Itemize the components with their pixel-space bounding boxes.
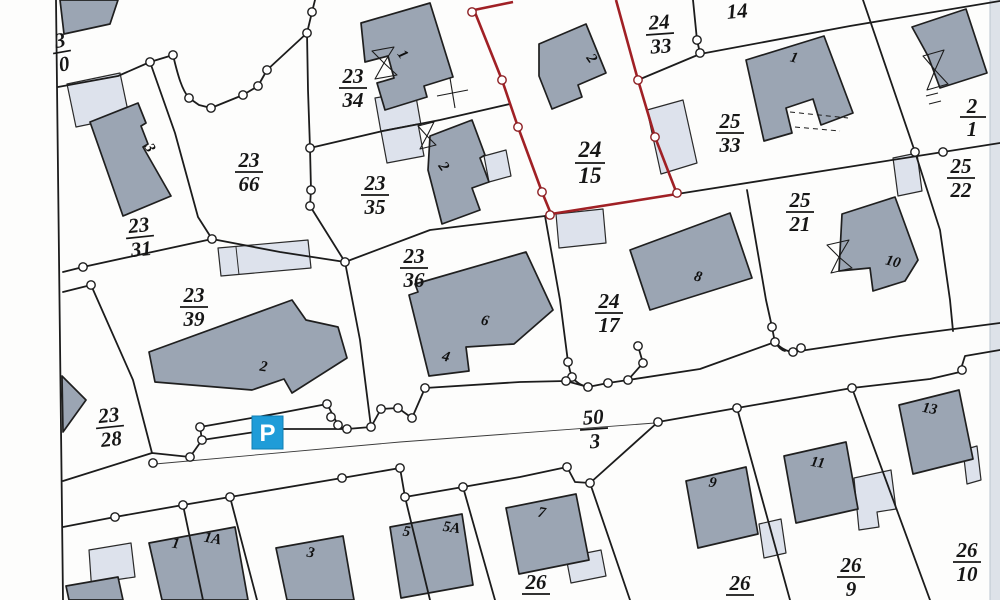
svg-text:26: 26 (729, 571, 752, 595)
parking-icon[interactable]: P (252, 416, 283, 449)
garage (556, 209, 606, 248)
svg-text:23: 23 (183, 283, 205, 307)
parcel-label-26-10: 26 10 (953, 538, 981, 586)
svg-text:25: 25 (719, 109, 741, 133)
parcel-label-25-21: 25 21 (786, 188, 814, 236)
svg-text:36: 36 (403, 268, 426, 292)
svg-text:25: 25 (950, 154, 972, 178)
svg-text:34: 34 (342, 88, 364, 112)
svg-text:39: 39 (183, 307, 206, 331)
building-7 (506, 494, 589, 574)
svg-text:24: 24 (647, 9, 671, 34)
svg-text:25: 25 (789, 188, 811, 212)
svg-text:33: 33 (719, 133, 741, 157)
svg-text:26: 26 (840, 553, 863, 577)
svg-text:24: 24 (598, 289, 620, 313)
svg-text:3: 3 (588, 429, 601, 454)
parcel-label-23-66: 23 66 (235, 148, 263, 196)
scan-edge-strip (990, 0, 1000, 600)
parcel-label-23-39: 23 39 (180, 283, 208, 331)
svg-text:10: 10 (957, 562, 979, 586)
parcel-label-14-partial: 14 (726, 0, 749, 24)
svg-text:35: 35 (364, 195, 386, 219)
parcel-label-25-22: 25 22 (947, 154, 975, 202)
svg-text:14: 14 (726, 0, 749, 24)
building-9 (686, 467, 758, 548)
svg-text:22: 22 (950, 178, 973, 202)
svg-text:23: 23 (238, 148, 260, 172)
cadastral-map-scan: P 3 0 23 66 23 31 23 34 23 35 23 (0, 0, 1000, 600)
svg-text:66: 66 (239, 172, 261, 196)
svg-text:23: 23 (403, 244, 425, 268)
svg-text:21: 21 (789, 212, 811, 236)
svg-text:26: 26 (525, 570, 548, 594)
svg-text:24: 24 (578, 137, 602, 162)
parcel-label-26-partial: 26 (726, 571, 754, 595)
parcel-label-23-35: 23 35 (361, 171, 389, 219)
map-canvas: P 3 0 23 66 23 31 23 34 23 35 23 (0, 0, 1000, 600)
parking-icon-letter: P (259, 420, 275, 447)
svg-text:15: 15 (579, 163, 602, 188)
parcel-label-23-36: 23 36 (400, 244, 428, 292)
svg-text:9: 9 (846, 577, 857, 600)
building-number: 5A (442, 519, 462, 537)
svg-text:33: 33 (649, 33, 673, 58)
building-number: 1A (203, 530, 223, 549)
parcel-label-26-partial: 26 (522, 570, 550, 594)
svg-text:23: 23 (364, 171, 386, 195)
svg-text:28: 28 (99, 426, 124, 452)
svg-text:26: 26 (956, 538, 979, 562)
svg-text:2: 2 (966, 94, 978, 118)
svg-text:23: 23 (342, 64, 364, 88)
svg-text:31: 31 (129, 236, 153, 262)
svg-text:23: 23 (96, 402, 120, 428)
parcel-label-24-17: 24 17 (595, 289, 623, 337)
svg-text:50: 50 (582, 404, 605, 429)
parcel-label-23-34: 23 34 (339, 64, 367, 112)
building-number: 11 (809, 454, 826, 472)
building-11 (784, 442, 858, 523)
svg-text:17: 17 (599, 313, 622, 337)
svg-text:1: 1 (967, 117, 978, 141)
parcel-label-25-33: 25 33 (716, 109, 744, 157)
parcel-label-24-15: 24 15 (575, 137, 605, 188)
svg-text:23: 23 (126, 212, 150, 238)
